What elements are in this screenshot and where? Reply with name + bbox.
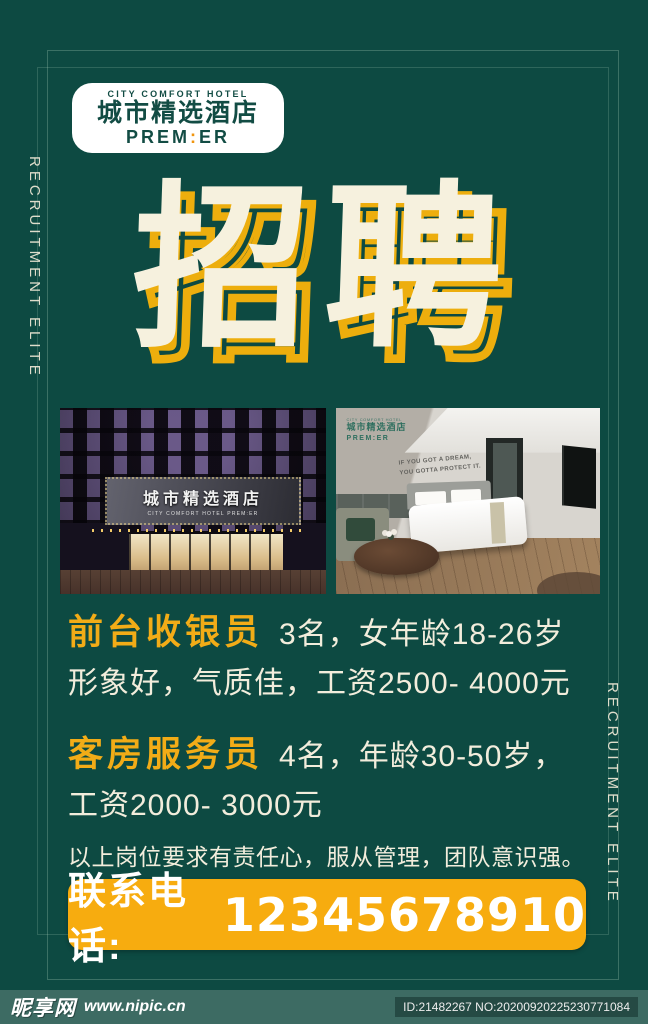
recruitment-poster: RECRUITMENT ELITE RECRUITMENT ELITE CITY… — [0, 0, 648, 1024]
contact-phone-button: 联系电话: 12345678910 — [68, 879, 586, 950]
exterior-hotel-sign: 城市精选酒店 CITY COMFORT HOTEL PREM:ER — [105, 477, 301, 526]
logo-premier-pre: PREM — [126, 127, 190, 147]
job-front-desk-line1: 前台收银员3名，女年龄18-26岁 — [68, 604, 564, 655]
watermark-footer-bar: 昵享网 www.nipic.cn ID:21482267 NO:20200920… — [0, 990, 648, 1024]
headline-face-layer: 招聘 — [0, 162, 648, 376]
exterior-pavement — [60, 570, 326, 594]
job-front-desk-detail2: 形象好，气质佳，工资2500- 4000元 — [68, 667, 571, 700]
logo-premier-colon: : — [190, 127, 199, 147]
contact-phone-number: 12345678910 — [223, 888, 586, 942]
logo-premier-wordmark: PREM:ER — [126, 127, 230, 147]
photo-hotel-exterior: 城市精选酒店 CITY COMFORT HOTEL PREM:ER — [60, 408, 326, 594]
site-logo: 昵享网 — [10, 992, 76, 1022]
logo-hotel-name-cn: 城市精选酒店 — [97, 99, 259, 127]
room-bed-runner — [490, 502, 506, 543]
logo-tagline: CITY COMFORT HOTEL — [108, 89, 249, 99]
hotel-logo-card: CITY COMFORT HOTEL 城市精选酒店 PREM:ER — [72, 83, 284, 153]
exterior-sign-text-cn: 城市精选酒店 — [143, 485, 263, 509]
job-housekeeping-line1: 客房服务员4名，年龄30-50岁， — [68, 726, 564, 777]
exterior-sign-text-en: CITY COMFORT HOTEL PREM:ER — [147, 511, 258, 517]
job-housekeeping-line2: 工资2000- 3000元 — [68, 780, 323, 824]
room-tv-screen — [562, 445, 596, 508]
contact-label: 联系电话: — [68, 860, 211, 970]
exterior-marquee-lights — [92, 529, 305, 532]
logo-premier-post: ER — [199, 127, 230, 147]
side-caption-right: RECRUITMENT ELITE — [604, 682, 621, 905]
recruitment-headline: 招聘 招聘 — [0, 162, 648, 402]
job-housekeeping-detail: 4名，年龄30-50岁， — [279, 740, 564, 773]
photo-hotel-room: IF YOU GOT A DREAM, YOU GOTTA PROTECT IT… — [336, 408, 600, 594]
job-housekeeping-detail2: 工资2000- 3000元 — [68, 789, 323, 822]
room-logo-en: PREM:ER — [347, 434, 407, 443]
room-flower-vase — [386, 531, 392, 537]
job-housekeeping-title: 客房服务员 — [68, 735, 263, 774]
site-url: www.nipic.cn — [84, 998, 186, 1016]
job-front-desk-title: 前台收银员 — [68, 613, 263, 652]
room-wall-logo: CITY COMFORT HOTEL 城市精选酒店 PREM:ER — [347, 417, 407, 443]
exterior-entrance-doors — [129, 531, 283, 575]
image-id-number: ID:21482267 NO:20200920225230771084 — [395, 997, 638, 1017]
room-logo-cn: 城市精选酒店 — [347, 422, 407, 434]
job-front-desk-detail: 3名，女年龄18-26岁 — [279, 618, 564, 651]
room-sofa-cushion — [346, 518, 375, 541]
job-front-desk-line2: 形象好，气质佳，工资2500- 4000元 — [68, 658, 571, 702]
